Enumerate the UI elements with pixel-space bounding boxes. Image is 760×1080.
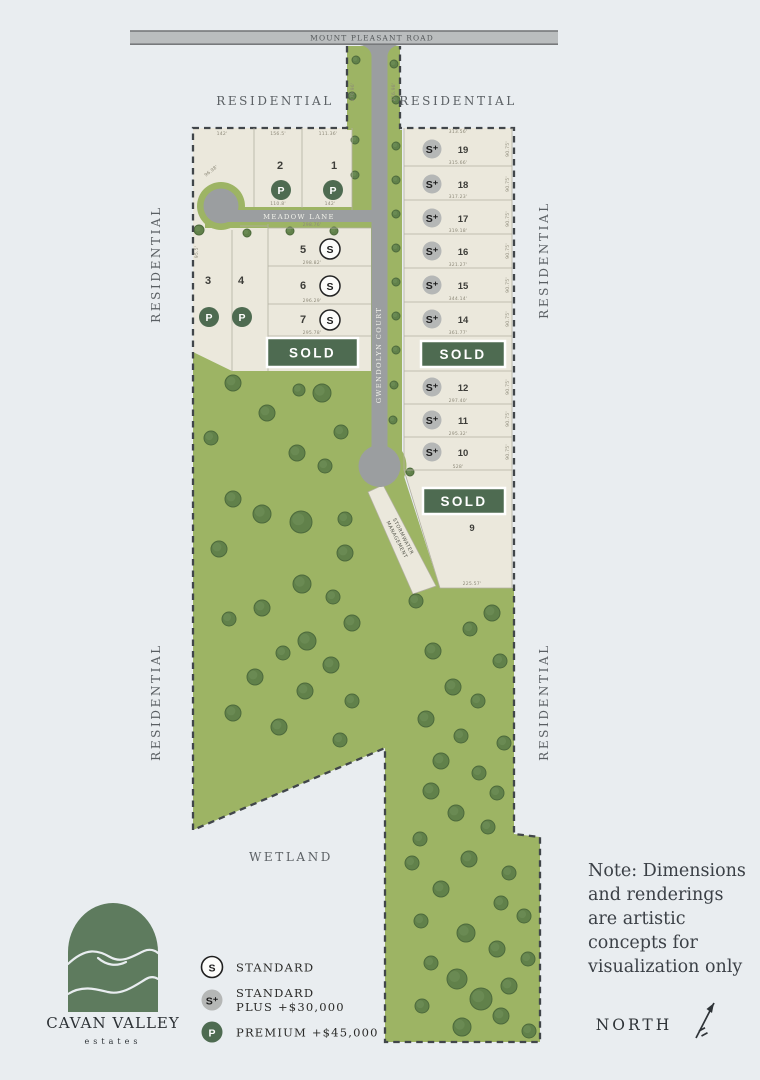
dim-label: 90.75' [505,311,511,327]
note-line: Note: Dimensions [588,861,746,881]
marker-letter: S⁺ [426,280,439,292]
marker-letter: P [205,312,212,324]
site-plan-page: MOUNT PLEASANT ROAD MEADOW LANE GWENDOLY… [0,0,760,1080]
meadow-lane-label: MEADOW LANE [263,213,335,221]
sold-label: SOLD [440,494,487,509]
logo-title: CAVAN VALLEY [46,1014,180,1032]
dim-label: 313.56' [449,129,468,135]
lot-number: 12 [458,383,469,394]
dim-label: 142' [217,131,228,137]
lot-number: 15 [458,281,469,292]
logo-subtitle: estates [85,1037,142,1046]
site-map: MOUNT PLEASANT ROAD MEADOW LANE GWENDOLY… [0,0,760,1080]
dim-label: 276.98' [391,83,397,102]
marker-letter: S⁺ [426,415,439,427]
residential-label-right-upper: RESIDENTIAL [537,201,551,319]
lot-number: 4 [238,275,245,287]
legend-item-standard: S STANDARD [202,957,315,978]
lot-number: 5 [300,244,306,256]
note-line: visualization only [587,957,742,977]
marker-letter: S [326,281,333,293]
dim-label: 528' [453,464,464,470]
marker-letter: P [277,185,284,197]
marker-letter: S⁺ [426,179,439,191]
lot-number: 3 [205,275,211,287]
lot-number: 2 [277,160,283,172]
legend-label: PREMIUM +$45,000 [236,1026,379,1040]
dim-label: 156.5' [270,131,286,137]
lot-number: 18 [458,180,469,191]
dim-label: 361.77' [449,330,468,336]
lot-number: 6 [300,280,306,292]
marker-letter: S⁺ [426,382,439,394]
dim-label: 90.75' [505,277,511,293]
legend-label-price: PLUS +$30,000 [236,1000,345,1014]
legend-symbol: S [208,963,215,975]
dim-label: 90.75' [505,141,511,157]
dim-label: 296.29' [303,298,322,304]
residential-label-left-upper: RESIDENTIAL [149,205,163,323]
sold-label: SOLD [439,347,486,362]
dim-label: 317.23' [449,194,468,200]
dim-label: 90.75' [505,176,511,192]
marker-letter: S⁺ [426,246,439,258]
dim-label: 111.36' [319,131,338,137]
lot-number: 14 [458,315,469,326]
gwendolyn-culdesac [359,445,401,487]
marker-letter: P [329,185,336,197]
sold-label: SOLD [289,346,336,361]
dim-label: 90.75' [505,211,511,227]
marker-letter: S⁺ [426,314,439,326]
dim-label: 298.82' [303,260,322,266]
north-label: NORTH [596,1016,673,1034]
dim-label: 142' [325,201,336,207]
dim-label: 90.75' [505,243,511,259]
dim-label: 270.96' [350,83,356,102]
dim-label: 90.75' [505,379,511,395]
dim-label: 295.32' [449,431,468,437]
residential-label-left-lower: RESIDENTIAL [149,643,163,761]
note-line: are artistic [588,909,686,929]
dim-label: 344.14' [449,296,468,302]
dim-label: 90.75' [505,411,511,427]
lot-number: 19 [458,145,469,156]
residential-label-right-lower: RESIDENTIAL [537,643,551,761]
legend-symbol: S⁺ [206,996,219,1008]
note-line: concepts for [588,933,699,953]
marker-letter: S⁺ [426,144,439,156]
dim-label: 295.78' [303,330,322,336]
sold-badge-lot-13: SOLD [421,341,505,367]
dim-label: 297.40' [449,398,468,404]
note-line: and renderings [588,885,723,905]
lot-number: 16 [458,247,469,258]
marker-letter: S⁺ [426,447,439,459]
legend-label: STANDARD [236,986,314,1000]
marker-letter: S [326,244,333,256]
lot-number: 7 [300,314,306,326]
marker-letter: S [326,315,333,327]
dim-label: 298.76' [303,222,322,228]
mount-pleasant-road-label: MOUNT PLEASANT ROAD [310,34,434,43]
lot-number: 9 [469,523,474,534]
gwendolyn-court-label: GWENDOLYN COURT [375,307,383,404]
dim-label: 319.18' [449,228,468,234]
legend-label: STANDARD [236,961,314,975]
marker-letter: S⁺ [426,213,439,225]
sold-badge-lot-8: SOLD [267,338,358,367]
dim-label: 90.75' [505,444,511,460]
dim-label: 95.5' [194,246,200,259]
dim-label: 321.27' [449,262,468,268]
lot-number: 10 [458,448,469,459]
legend-symbol: P [208,1028,215,1040]
dim-label: 110.8' [270,201,286,207]
lot-number: 1 [331,160,337,172]
dim-label: 315.66' [449,160,468,166]
marker-letter: P [238,312,245,324]
residential-label-top-left: RESIDENTIAL [216,94,334,108]
lot-number: 17 [458,214,469,225]
lot-9: 9 [469,523,474,534]
sold-badge-lot-9: SOLD [423,488,505,514]
dim-label: 225.57' [463,581,482,587]
wetland-label: WETLAND [249,850,333,864]
residential-label-top-right: RESIDENTIAL [399,94,517,108]
lot-number: 11 [458,416,469,427]
